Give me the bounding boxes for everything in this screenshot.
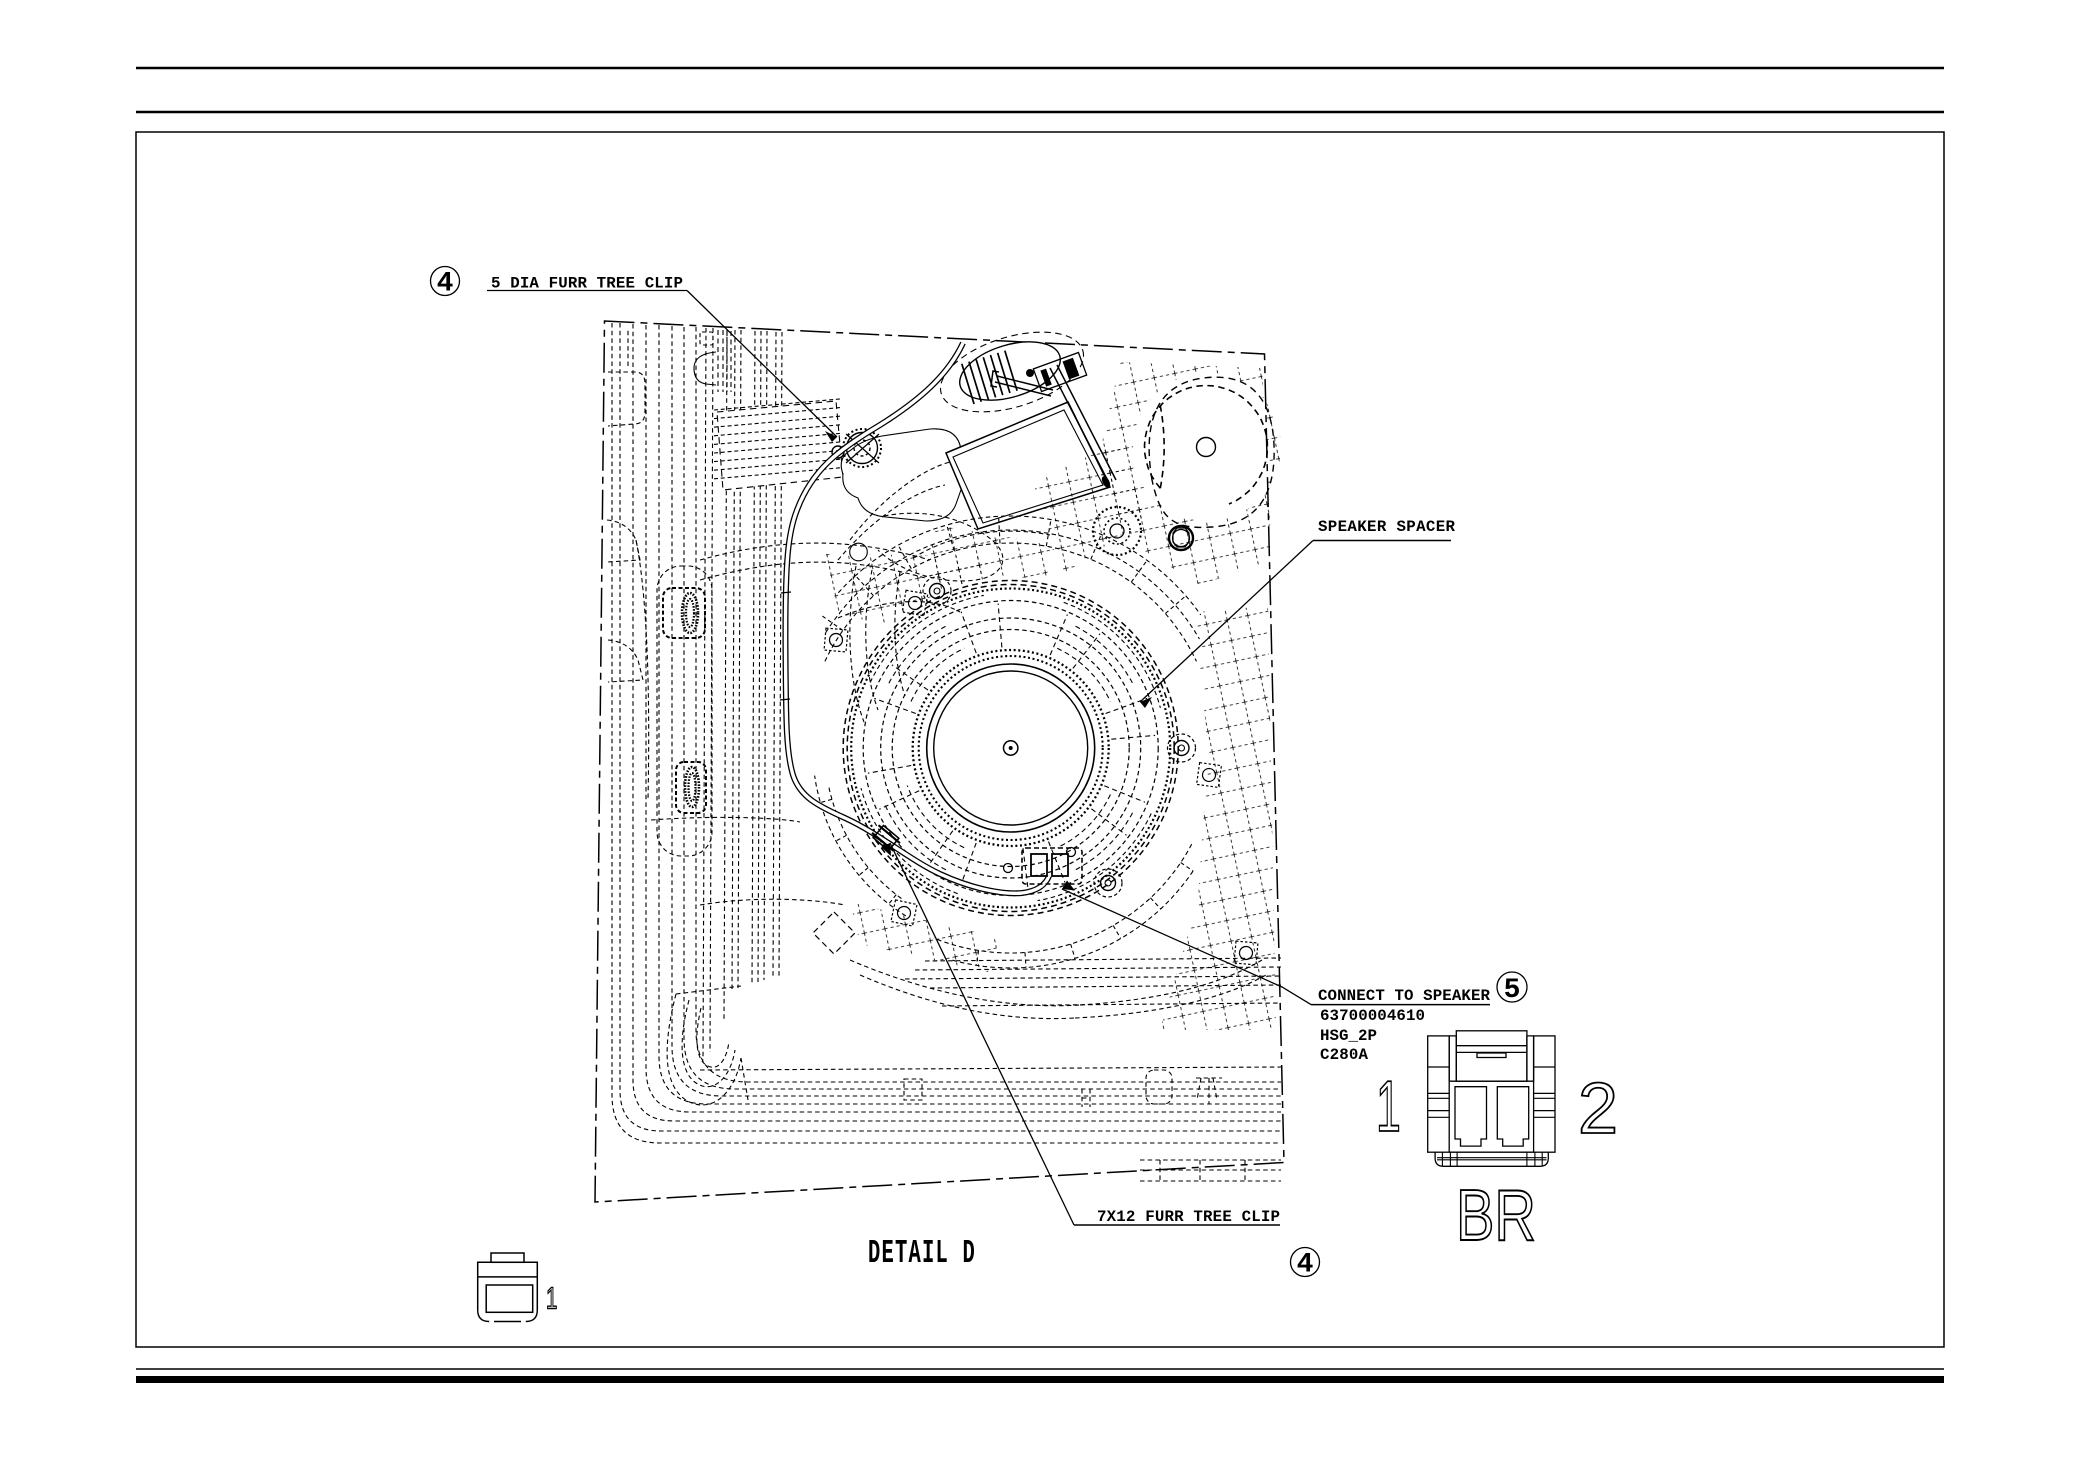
svg-text:1: 1 [546, 1280, 557, 1315]
svg-text:4: 4 [1297, 1250, 1314, 1281]
svg-text:BR: BR [1456, 1175, 1536, 1256]
svg-text:63700004610: 63700004610 [1320, 1007, 1425, 1025]
svg-text:4: 4 [437, 269, 454, 300]
svg-text:5: 5 [1504, 975, 1521, 1006]
svg-text:CONNECT TO SPEAKER: CONNECT TO SPEAKER [1318, 987, 1491, 1005]
svg-text:DETAIL D: DETAIL D [868, 1236, 976, 1273]
svg-text:7X12 FURR TREE CLIP: 7X12 FURR TREE CLIP [1097, 1208, 1280, 1226]
svg-text:2: 2 [1578, 1069, 1618, 1149]
svg-text:5 DIA FURR TREE CLIP: 5 DIA FURR TREE CLIP [491, 275, 683, 293]
svg-text:1: 1 [1376, 1066, 1401, 1147]
svg-text:SPEAKER SPACER: SPEAKER SPACER [1318, 518, 1456, 536]
svg-text:C280A: C280A [1320, 1046, 1369, 1064]
svg-text:HSG_2P: HSG_2P [1320, 1027, 1377, 1045]
